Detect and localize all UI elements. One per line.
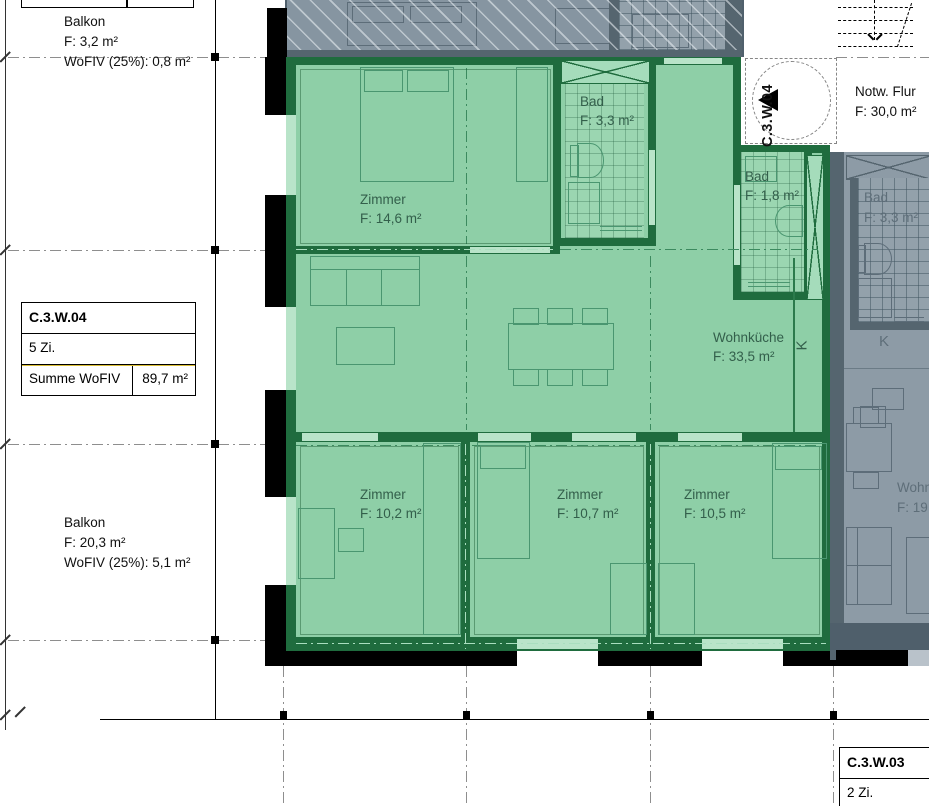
wall-black: [265, 57, 286, 115]
room-area: F: 1,8 m²: [745, 186, 799, 205]
door: [572, 433, 636, 441]
sum-value-cell: 89,7 m²: [132, 365, 195, 395]
stair-step: [838, 7, 913, 8]
stair-diagonal: [897, 3, 912, 47]
stair-arrow-icon: [876, 33, 883, 40]
wall: [733, 292, 812, 300]
divider-line: [844, 368, 929, 369]
sum-label-cell: Summe WoFIV: [22, 365, 132, 395]
wall: [830, 623, 929, 650]
unit-rooms-cell: 5 Zi.: [22, 334, 195, 365]
wall-black: [265, 195, 286, 307]
room-name: Bad: [745, 167, 799, 186]
unit-id-cell: C.3.W.03: [840, 748, 929, 779]
chair-icon: [853, 407, 879, 424]
grid-marker: [280, 711, 287, 719]
sofa-icon: [846, 527, 892, 605]
towel-rail-icon: [748, 282, 790, 287]
gridline-vertical: [833, 666, 834, 806]
unit-sum-row: Summe WoFIV 89,7 m²: [22, 365, 195, 395]
shower-icon: [568, 182, 600, 224]
grid-marker: [647, 711, 654, 719]
kitchen-label: K: [793, 340, 812, 350]
door: [302, 433, 378, 441]
wall: [287, 50, 742, 57]
towel-rail-icon: [600, 226, 642, 231]
room-label-zimmer-3: Zimmer F: 10,7 m²: [557, 485, 619, 523]
neighbor-living-label: Wohn F: 19: [897, 478, 929, 518]
wall-black: [598, 651, 702, 666]
room-name: Zimmer: [360, 485, 422, 504]
floor-plan: Balkon F: 3,2 m² WoFIV (25%): 0,8 m² Bal…: [0, 0, 929, 806]
door: [470, 247, 550, 253]
corridor-label: Notw. Flur F: 30,0 m²: [855, 82, 917, 122]
grid-marker: [463, 711, 470, 719]
wall-black: [267, 8, 287, 57]
room-area: F: 3,3 m²: [864, 208, 918, 228]
shower-icon: [858, 278, 892, 318]
window: [286, 497, 296, 585]
party-wall: [830, 152, 844, 660]
window: [702, 639, 783, 649]
chair-icon: [582, 308, 608, 325]
wall: [850, 178, 858, 330]
dining-table-icon: [508, 323, 614, 370]
gridline-horizontal: [296, 249, 553, 250]
boundary-line-vertical: [215, 0, 216, 719]
stair-step: [838, 20, 913, 21]
room-area: F: 10,5 m²: [684, 504, 746, 523]
shaft-box: [846, 155, 929, 180]
grid-marker: [830, 711, 837, 719]
grid-marker: [211, 246, 219, 254]
sofa-back-line: [857, 528, 858, 604]
stairs: [838, 0, 913, 52]
room-area: F: 14,6 m²: [360, 209, 422, 228]
sofa-back-line: [311, 269, 419, 270]
window: [286, 115, 296, 195]
room-area: F: 3,3 m²: [580, 111, 634, 130]
wardrobe-icon: [610, 563, 647, 635]
door: [478, 433, 531, 441]
room-name: Zimmer: [360, 190, 422, 209]
room-name: Zimmer: [684, 485, 746, 504]
accent-line: [22, 365, 195, 366]
pillow-icon: [407, 70, 449, 92]
corridor-area: F: 30,0 m²: [855, 102, 917, 122]
gridline-vertical: [466, 666, 467, 806]
corridor-name: Notw. Flur: [855, 82, 917, 102]
dimension-tick: [15, 706, 26, 717]
side-table-icon: [338, 528, 364, 552]
window: [517, 639, 598, 649]
window: [286, 307, 296, 390]
room-name: Zimmer: [557, 485, 619, 504]
marker-label: C.3.W.04: [760, 84, 776, 147]
sofa-icon: [310, 256, 420, 306]
door: [678, 433, 742, 441]
balcony-top-label: Balkon F: 3,2 m² WoFIV (25%): 0,8 m²: [64, 12, 191, 72]
unit-id-cell: C.3.W.04: [22, 303, 195, 334]
door: [734, 185, 740, 265]
grid-marker: [211, 440, 219, 448]
balcony-left-label: Balkon F: 20,3 m² WoFIV (25%): 5,1 m²: [64, 513, 191, 573]
door: [649, 150, 655, 225]
wall: [733, 57, 741, 152]
balcony-area: F: 20,3 m²: [64, 533, 191, 553]
shaft-box: [806, 155, 824, 300]
dimension-line-vertical: [5, 0, 6, 730]
gridline-vertical: [650, 666, 651, 806]
room-area: F: 10,7 m²: [557, 504, 619, 523]
pillow-icon: [480, 445, 526, 469]
chair-icon: [547, 369, 573, 386]
room-label-wohnkueche: Wohnküche F: 33,5 m²: [713, 328, 784, 366]
slab-edge: [908, 650, 929, 666]
wardrobe-icon: [423, 443, 461, 635]
balcony-name: Balkon: [64, 513, 191, 533]
unit-marker: C.3.W.04: [745, 58, 837, 144]
gridline-vertical: [650, 256, 651, 430]
wall: [553, 57, 561, 246]
toilet-icon: [864, 243, 892, 275]
chair-icon: [582, 369, 608, 386]
balcony-name: Balkon: [64, 12, 191, 32]
pillow-icon: [364, 70, 403, 92]
wardrobe-icon: [516, 67, 548, 182]
gridline-horizontal: [8, 444, 266, 445]
room-name: Wohn: [897, 478, 929, 498]
room-label-bad-2: Bad F: 1,8 m²: [745, 167, 799, 205]
unit-info-table: C.3.W.04 5 Zi. Summe WoFIV 89,7 m²: [21, 302, 196, 396]
room-area: F: 33,5 m²: [713, 347, 784, 366]
towel-rail-icon: [894, 317, 924, 322]
wall: [553, 238, 656, 246]
room-label-zimmer-1: Zimmer F: 14,6 m²: [360, 190, 422, 228]
grid-marker: [211, 53, 219, 61]
grid-marker: [211, 636, 219, 644]
bed-icon: [298, 508, 335, 579]
balcony-area: F: 3,2 m²: [64, 32, 191, 52]
gridline-horizontal: [296, 643, 826, 644]
hatch-overlay: [287, 0, 742, 57]
pillow-icon: [775, 446, 822, 470]
toilet-icon: [577, 143, 604, 178]
wardrobe-icon: [658, 563, 695, 635]
shaft-box: [561, 60, 650, 84]
toilet-icon: [775, 205, 803, 237]
unit-rooms-cell: 2 Zi.: [840, 779, 929, 806]
room-label-zimmer-4: Zimmer F: 10,5 m²: [684, 485, 746, 523]
chair-icon: [853, 472, 879, 489]
gridline-vertical: [283, 666, 284, 806]
coffee-table-icon: [336, 327, 395, 365]
stair-step: [838, 46, 913, 47]
table-divider: [126, 0, 128, 7]
armchair-icon: [906, 537, 929, 614]
sofa-divider: [381, 269, 382, 305]
gridline-horizontal: [8, 640, 266, 641]
neighbor-kitchen-label: K: [879, 332, 889, 352]
gridline-vertical: [466, 256, 467, 430]
gridline-vertical: [650, 444, 651, 649]
chair-icon: [513, 369, 539, 386]
chair-icon: [513, 308, 539, 325]
wall: [850, 322, 929, 330]
room-name: Wohnküche: [713, 328, 784, 347]
room-label-bad-1: Bad F: 3,3 m²: [580, 92, 634, 130]
neighbor-balcony-strip: [285, 0, 744, 57]
info-table-cut: [21, 0, 194, 8]
neighbor-bad-label: Bad F: 3,3 m²: [864, 188, 918, 228]
room-name: Bad: [580, 92, 634, 111]
table-icon: [846, 423, 892, 472]
sofa-divider: [847, 565, 891, 566]
entry-door: [664, 58, 722, 64]
wall-black: [783, 651, 836, 666]
gridline-vertical: [465, 444, 466, 649]
stair-centerline: [874, 0, 875, 40]
unit-info-table-2: C.3.W.03 2 Zi.: [839, 747, 929, 806]
room-area: F: 10,2 m²: [360, 504, 422, 523]
room-label-zimmer-2: Zimmer F: 10,2 m²: [360, 485, 422, 523]
balcony-wofiv: WoFIV (25%): 5,1 m²: [64, 553, 191, 573]
sofa-divider: [346, 269, 347, 305]
room-name: Bad: [864, 188, 918, 208]
balcony-wofiv: WoFIV (25%): 0,8 m²: [64, 52, 191, 72]
wall-black: [836, 650, 908, 666]
gridline-horizontal: [836, 57, 929, 58]
gridline-horizontal: [560, 249, 818, 250]
gridline-horizontal: [8, 250, 266, 251]
room-area: F: 19: [897, 498, 929, 518]
chair-icon: [547, 308, 573, 325]
wall-black: [265, 390, 286, 497]
boundary-line-horizontal: [100, 719, 929, 720]
wall-black: [265, 651, 517, 666]
